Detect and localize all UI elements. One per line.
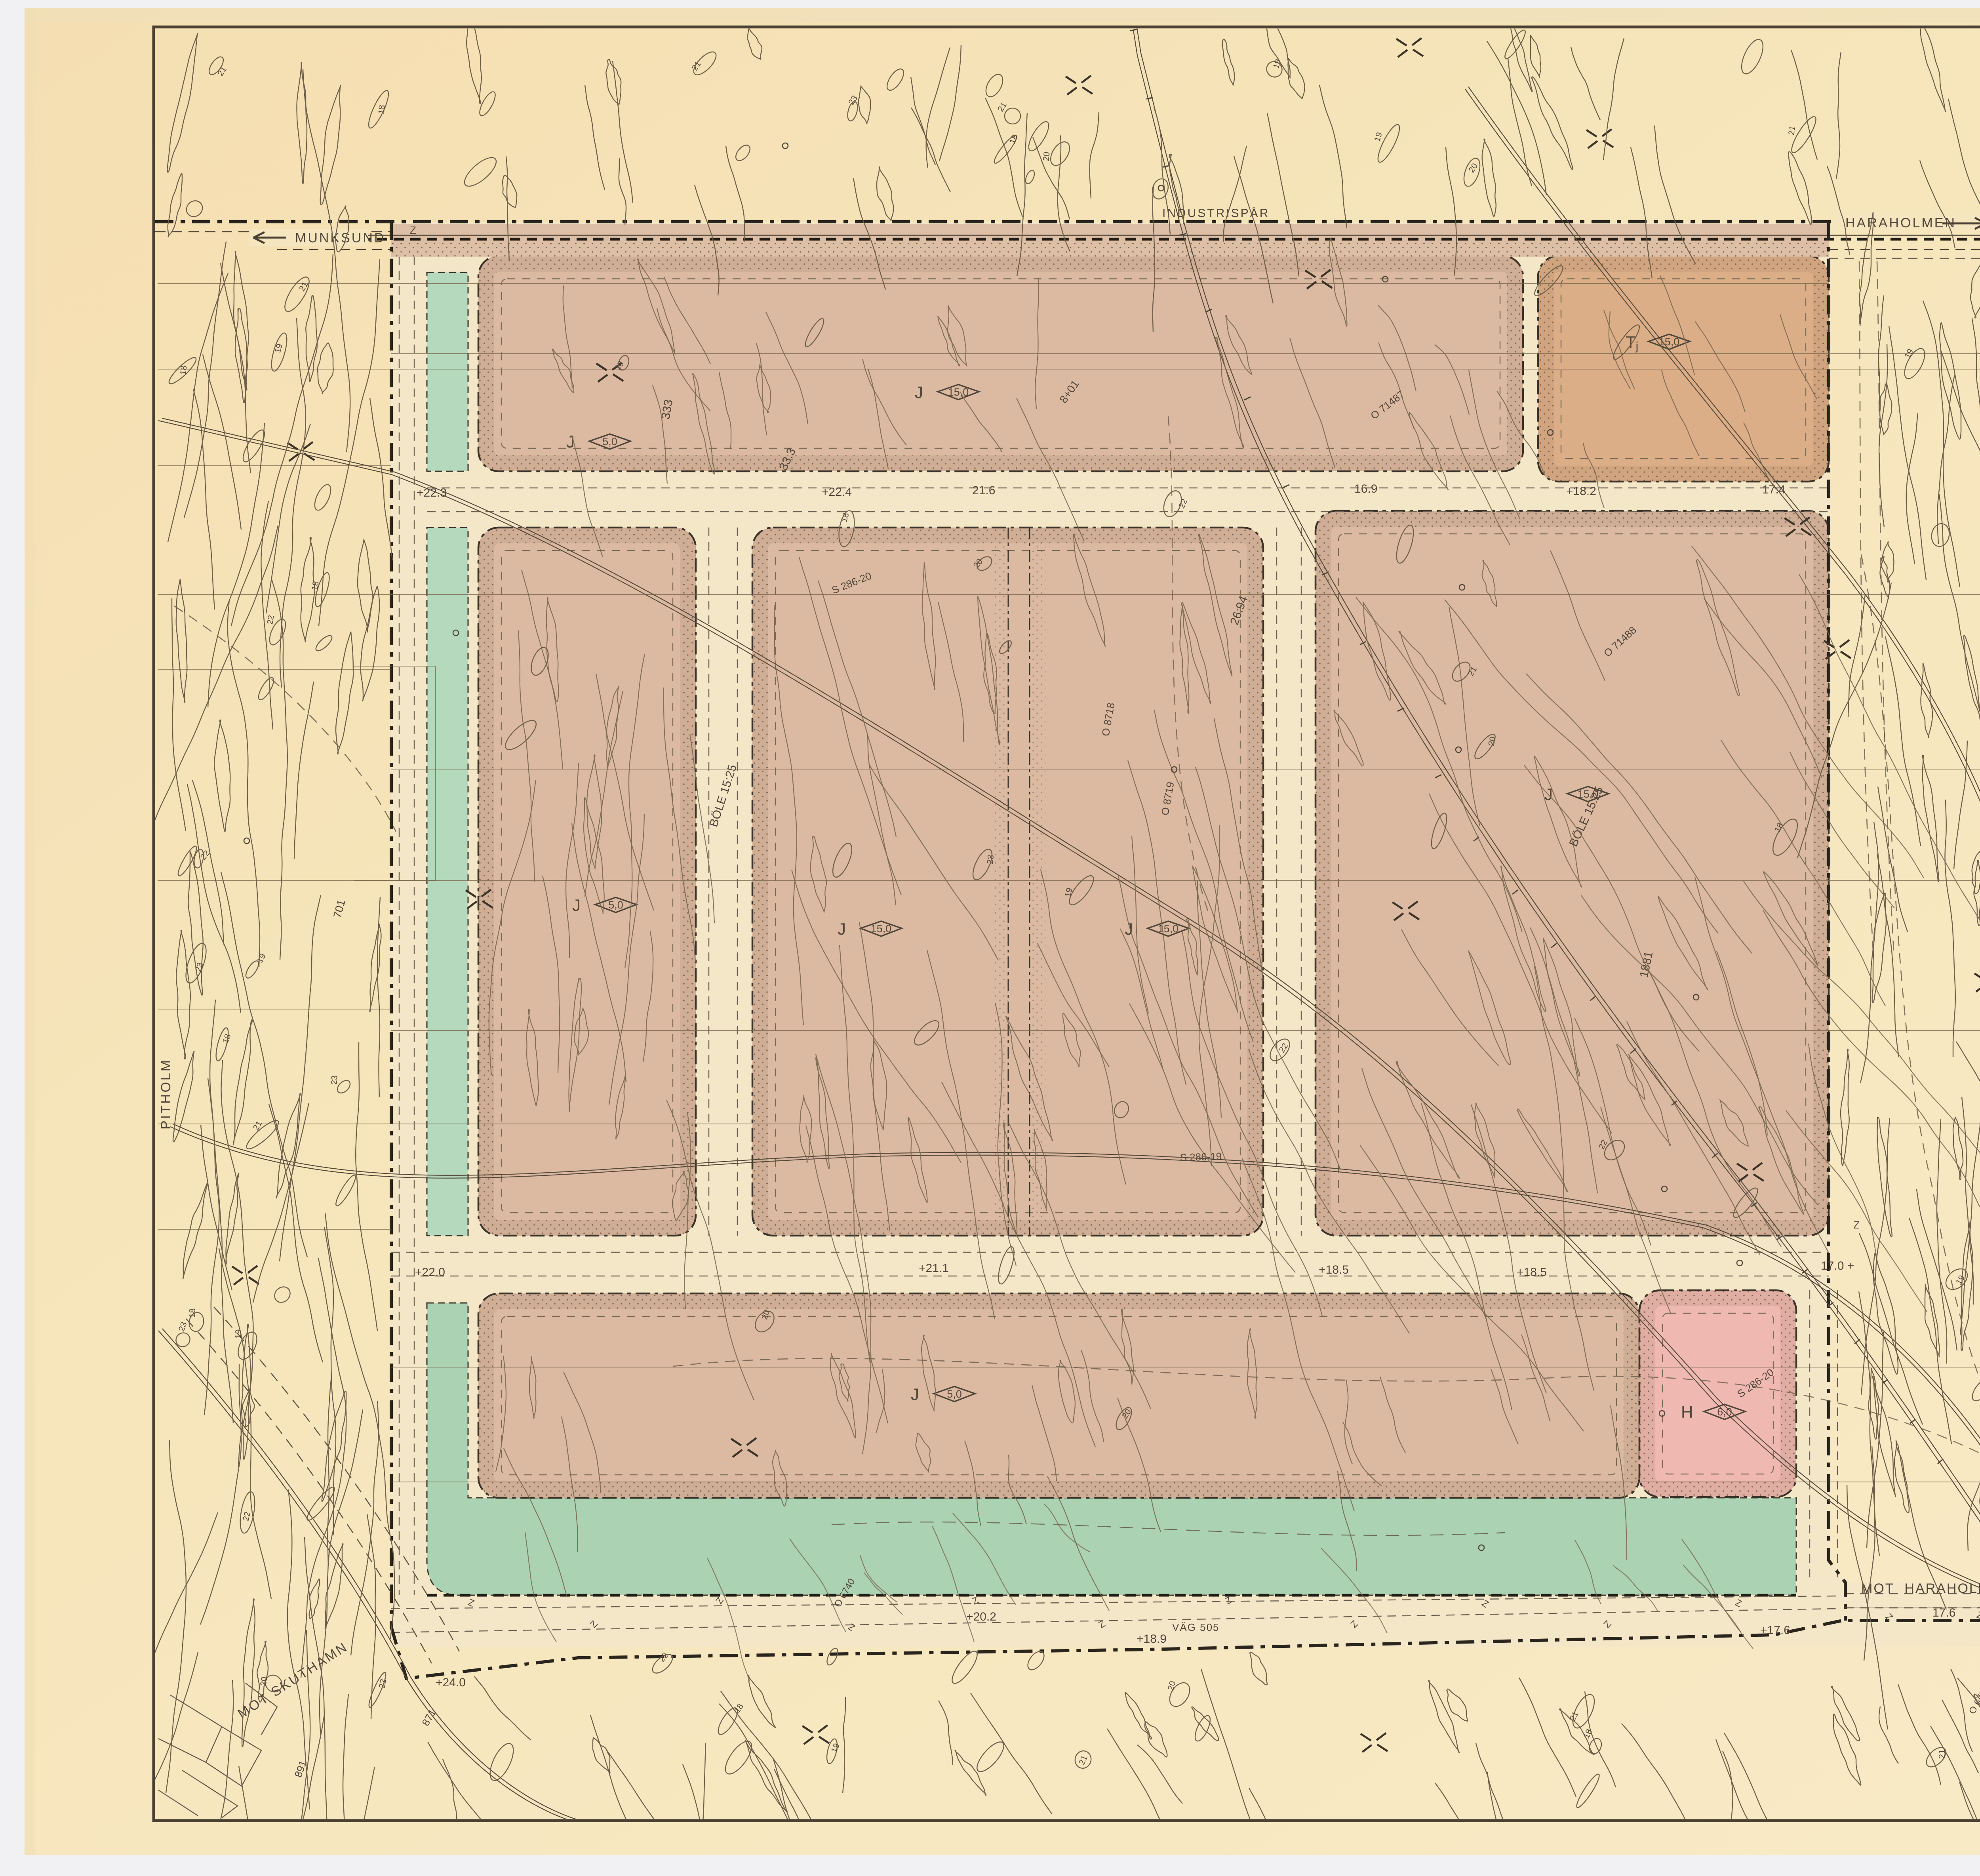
svg-text:18: 18 [310, 581, 321, 591]
svg-text:21.6: 21.6 [972, 484, 995, 497]
svg-text:21: 21 [1787, 125, 1797, 136]
svg-text:J: J [838, 920, 846, 938]
svg-text:J: J [915, 383, 923, 402]
svg-text:Z: Z [1853, 1219, 1860, 1231]
svg-text:VÄG 505: VÄG 505 [1172, 1621, 1220, 1633]
svg-text:+18.5: +18.5 [1517, 1266, 1547, 1279]
svg-text:21: 21 [1938, 1749, 1947, 1759]
svg-text:17.0 +: 17.0 + [1821, 1259, 1854, 1272]
svg-text:+24.0: +24.0 [436, 1676, 466, 1689]
svg-text:S 286-19: S 286-19 [1180, 1150, 1222, 1164]
svg-text:15,0: 15,0 [948, 386, 969, 398]
svg-text:17.4: 17.4 [1762, 483, 1785, 496]
svg-text:H: H [1681, 1403, 1693, 1421]
svg-text:15,0: 15,0 [1158, 923, 1179, 935]
svg-text:6,0: 6,0 [1717, 1406, 1732, 1418]
svg-text:PITHOLM: PITHOLM [158, 1059, 173, 1129]
svg-text:5,0: 5,0 [947, 1388, 962, 1400]
svg-text:+22.0: +22.0 [415, 1266, 445, 1279]
svg-text:15,0: 15,0 [1659, 336, 1680, 348]
svg-text:18: 18 [377, 105, 387, 114]
svg-text:17.6: 17.6 [1932, 1606, 1955, 1619]
svg-text:22: 22 [265, 615, 276, 625]
svg-text:23: 23 [986, 854, 996, 865]
svg-text:MOT HARAHOLMEN: MOT HARAHOLMEN [1861, 1581, 1980, 1596]
svg-text:15,0: 15,0 [871, 923, 892, 935]
svg-text:+18.9: +18.9 [1137, 1632, 1167, 1646]
svg-text:J: J [911, 1385, 919, 1404]
svg-text:Z: Z [410, 224, 416, 236]
svg-text:+18.2: +18.2 [1566, 485, 1596, 498]
svg-text:23: 23 [329, 1075, 339, 1085]
svg-text:MUNKSUND: MUNKSUND [295, 230, 385, 246]
svg-text:+20.2: +20.2 [966, 1610, 996, 1623]
svg-text:+21.1: +21.1 [919, 1262, 949, 1275]
svg-text:18: 18 [188, 1308, 197, 1318]
svg-text:J: J [572, 896, 581, 914]
svg-text:5,0: 5,0 [602, 436, 617, 448]
svg-text:+17.6: +17.6 [1760, 1624, 1790, 1637]
svg-text:20: 20 [1041, 151, 1051, 162]
svg-text:+22.3: +22.3 [417, 486, 447, 499]
svg-text:16.9: 16.9 [1354, 482, 1377, 495]
svg-text:18: 18 [179, 365, 189, 375]
svg-text:+18.5: +18.5 [1319, 1263, 1349, 1276]
svg-text:22: 22 [377, 1678, 388, 1689]
svg-text:19: 19 [234, 1329, 243, 1339]
svg-text:+22.4: +22.4 [822, 486, 852, 499]
svg-text:20: 20 [259, 1676, 269, 1687]
svg-text:5,0: 5,0 [608, 899, 623, 911]
svg-text:INDUSTRISPÅR: INDUSTRISPÅR [1162, 207, 1270, 220]
svg-text:HARAHOLMEN: HARAHOLMEN [1845, 215, 1956, 230]
svg-text:19: 19 [1063, 887, 1074, 898]
